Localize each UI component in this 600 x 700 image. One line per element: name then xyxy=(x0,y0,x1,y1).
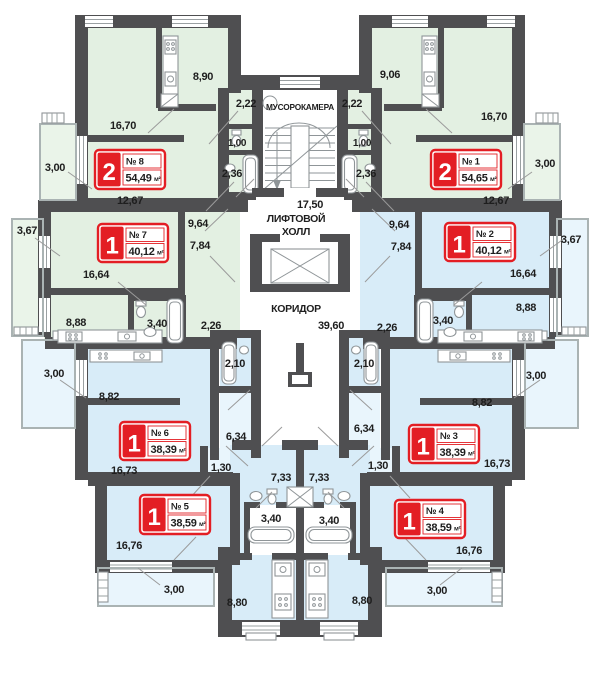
dim-a6-hall2: 1,30 xyxy=(211,462,231,474)
dim-a6-balcony: 3,00 xyxy=(44,368,64,380)
badge-rooms-count: 2 xyxy=(102,159,115,186)
dim-a6-hall1: 6,34 xyxy=(226,431,247,443)
dim-a7-hall2: 7,84 xyxy=(190,240,211,252)
elevator-shaft xyxy=(250,234,350,292)
staircase xyxy=(263,126,337,190)
badge-number: № 7 xyxy=(129,230,147,241)
corridor-label: КОРИДОР xyxy=(271,303,321,315)
dim-a3-hall2: 1,30 xyxy=(368,460,388,472)
apartment-badge-3[interactable]: 1 № 3 38,39 м² xyxy=(409,425,479,463)
apartment-badge-8[interactable]: 2 № 8 54,49 м² xyxy=(95,150,165,189)
dim-a2-living: 16,64 xyxy=(510,268,537,280)
apartment-badge-1[interactable]: 2 № 1 54,65 м² xyxy=(431,150,501,189)
dim-a8-living: 16,70 xyxy=(110,120,136,132)
badge-area: 40,12 xyxy=(476,245,502,257)
apartment-badge-2[interactable]: 1 № 2 40,12 м² xyxy=(445,223,515,261)
dim-a4-bath: 3,40 xyxy=(319,515,339,527)
corridor-area: 39,60 xyxy=(318,320,344,332)
badge-area: 38,39 xyxy=(151,444,177,456)
badge-number: № 4 xyxy=(426,506,445,517)
badge-rooms-count: 1 xyxy=(452,232,465,259)
dim-a3-hall1: 6,34 xyxy=(354,423,375,435)
dim-a2-kitchen: 8,88 xyxy=(516,302,536,314)
dim-a6-living: 16,73 xyxy=(111,465,137,477)
badge-rooms-count: 2 xyxy=(438,159,451,186)
dim-a7-bath: 3,40 xyxy=(147,318,167,330)
badge-rooms-count: 1 xyxy=(127,431,140,458)
elevator-hall-label-1: ЛИФТОВОЙ xyxy=(267,212,325,225)
dim-a7-kitchen: 8,88 xyxy=(66,317,86,329)
apartment-badge-7[interactable]: 1 № 7 40,12 м² xyxy=(98,224,168,262)
corridor-column xyxy=(288,343,312,387)
dim-a3-bath: 2,10 xyxy=(354,358,374,370)
badge-area: 38,59 xyxy=(171,518,197,530)
dim-a5-living: 16,76 xyxy=(116,540,142,552)
badge-area: 54,65 xyxy=(462,173,488,185)
elevator-hall-label-2: ХОЛЛ xyxy=(282,226,310,238)
dim-a8-hall: 2,22 xyxy=(236,98,256,110)
dim-a1-bath: 2,36 xyxy=(356,168,376,180)
dim-a1-bedroom: 12,67 xyxy=(483,195,509,207)
badge-number: № 1 xyxy=(462,157,481,168)
badge-area: 38,39 xyxy=(440,447,466,459)
dim-a5-balcony: 3,00 xyxy=(164,584,184,596)
dim-a8-balcony: 3,00 xyxy=(45,162,65,174)
dim-a6-kitchen: 8,82 xyxy=(99,391,119,403)
apartment-badge-4[interactable]: 1 № 4 38,59 м² xyxy=(395,500,465,538)
dim-a8-wc: 1,00 xyxy=(228,138,247,149)
dim-a1-wc: 1,00 xyxy=(353,138,372,149)
badge-rooms-count: 1 xyxy=(147,504,160,531)
dim-a4-living: 16,76 xyxy=(456,545,482,557)
dim-a1-balcony: 3,00 xyxy=(535,158,555,170)
dim-a8-bath: 2,36 xyxy=(222,168,242,180)
dim-a3-kitchen: 8,82 xyxy=(472,397,492,409)
dim-a4-hall: 7,33 xyxy=(309,472,329,484)
dim-a1-hall: 2,22 xyxy=(342,98,362,110)
dim-a3-balcony: 3,00 xyxy=(526,370,546,382)
dim-a7-hall1: 9,64 xyxy=(188,218,209,230)
dim-a3-living: 16,73 xyxy=(484,458,510,470)
badge-number: № 2 xyxy=(476,229,494,240)
trash-room-label: МУСОРОКАМЕРА xyxy=(266,102,334,112)
dim-a4-balcony: 3,00 xyxy=(427,585,447,597)
apartment-badge-6[interactable]: 1 № 6 38,39 м² xyxy=(120,422,190,460)
dim-a7-balcony: 3,67 xyxy=(17,225,37,237)
dim-a2-hall3: 2,26 xyxy=(377,322,397,334)
dim-a1-living: 16,70 xyxy=(481,111,507,123)
badge-number: № 6 xyxy=(151,428,169,439)
dim-a6-bath: 2,10 xyxy=(225,358,245,370)
dim-a5-kitchen: 8,80 xyxy=(227,597,247,609)
badge-area: 54,49 xyxy=(126,173,152,185)
badge-rooms-count: 1 xyxy=(416,434,429,461)
badge-number: № 5 xyxy=(171,502,190,513)
apartment-badge-5[interactable]: 1 № 5 38,59 м² xyxy=(140,495,210,534)
badge-rooms-count: 1 xyxy=(402,509,415,536)
badge-rooms-count: 1 xyxy=(105,233,118,260)
dim-a7-hall3: 2,26 xyxy=(201,320,221,332)
dim-a5-bath: 3,40 xyxy=(261,513,281,525)
dim-a8-kitchen: 8,90 xyxy=(193,71,213,83)
dim-a2-balcony: 3,67 xyxy=(561,234,581,246)
dim-a2-bath: 3,40 xyxy=(433,315,453,327)
floor-plan-svg: МУСОРОКАМЕРА 17,50 ЛИФТОВОЙ ХОЛЛ КОРИДОР… xyxy=(0,0,600,700)
badge-area: 40,12 xyxy=(129,246,155,258)
floor-plan: МУСОРОКАМЕРА 17,50 ЛИФТОВОЙ ХОЛЛ КОРИДОР… xyxy=(0,0,600,700)
dim-a4-kitchen: 8,80 xyxy=(352,595,372,607)
elevator-hall-area: 17,50 xyxy=(297,199,323,211)
dim-a1-kitchen: 9,06 xyxy=(380,69,400,81)
badge-number: № 8 xyxy=(126,157,144,168)
dim-a5-hall: 7,33 xyxy=(271,472,291,484)
dim-a7-living: 16,64 xyxy=(83,269,110,281)
dim-a8-bedroom: 12,67 xyxy=(117,195,143,207)
dim-a2-hall1: 9,64 xyxy=(389,219,410,231)
badge-number: № 3 xyxy=(440,431,458,442)
badge-area: 38,59 xyxy=(426,522,452,534)
dim-a2-hall2: 7,84 xyxy=(391,241,412,253)
